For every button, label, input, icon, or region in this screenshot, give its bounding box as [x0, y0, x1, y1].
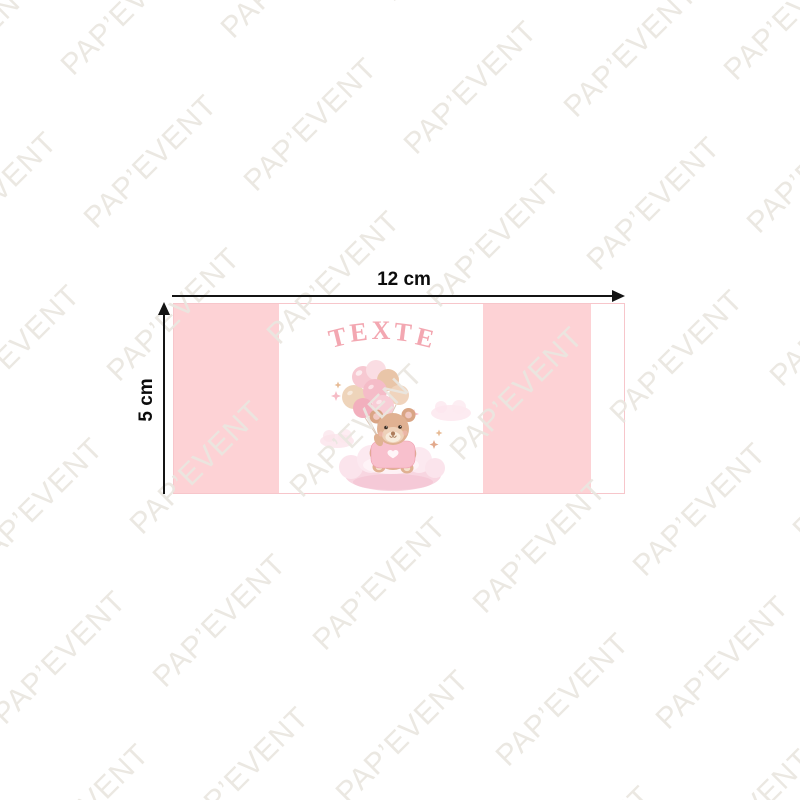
label-title-letter: E	[412, 322, 436, 355]
watermark-text: PAP’EVENT	[421, 168, 568, 315]
watermark-text: PAP’EVENT	[55, 0, 202, 82]
label-title-letter: T	[393, 317, 414, 349]
watermark-text: PAP’EVENT	[330, 664, 477, 800]
watermark-text: PAP’EVENT	[0, 585, 133, 732]
watermark-text: PAP’EVENT	[170, 701, 317, 800]
watermark-text: PAP’EVENT	[0, 126, 64, 273]
watermark-text: PAP’EVENT	[375, 0, 522, 8]
watermark-text: PAP’EVENT	[604, 284, 751, 431]
width-arrowhead-icon	[612, 290, 625, 302]
watermark-text: PAP’EVENT	[718, 0, 800, 87]
mockup-canvas: PAP’EVENTPAP’EVENTPAP’EVENTPAP’EVENTPAP’…	[0, 0, 800, 800]
width-dimension-label: 12 cm	[334, 269, 474, 291]
watermark-text: PAP’EVENT	[398, 15, 545, 162]
watermark-text: PAP’EVENT	[0, 279, 87, 426]
width-dimension-line	[172, 295, 616, 297]
balloons-group	[342, 360, 409, 418]
watermark-text: PAP’EVENT	[307, 511, 454, 658]
bear-group	[368, 408, 418, 474]
watermark-text: PAP’EVENT	[467, 474, 614, 621]
watermark-text: PAP’EVENT	[0, 0, 41, 119]
watermark-text: PAP’EVENT	[650, 590, 797, 737]
right-pink-panel	[483, 304, 591, 493]
watermark-text: PAP’EVENT	[10, 738, 157, 800]
left-pink-panel	[174, 304, 279, 493]
teddy-bear-illustration	[313, 355, 473, 495]
watermark-text: PAP’EVENT	[741, 94, 800, 241]
watermark-text: PAP’EVENT	[558, 0, 705, 124]
watermark-text: PAP’EVENT	[764, 247, 800, 394]
watermark-text: PAP’EVENT	[0, 432, 110, 579]
watermark-text: PAP’EVENT	[513, 780, 660, 800]
watermark-text: PAP’EVENT	[490, 627, 637, 774]
watermark-text: PAP’EVENT	[673, 743, 800, 800]
height-arrowhead-icon	[158, 302, 170, 315]
watermark-text: PAP’EVENT	[238, 52, 385, 199]
label-preview: TEXTE	[173, 303, 625, 494]
watermark-text: PAP’EVENT	[215, 0, 362, 45]
label-title-text: TEXTE	[279, 316, 483, 346]
height-dimension-line	[163, 312, 165, 494]
watermark-text: PAP’EVENT	[78, 89, 225, 236]
watermark-text: PAP’EVENT	[147, 548, 294, 695]
label-title-letter: T	[326, 322, 350, 355]
watermark-text: PAP’EVENT	[581, 131, 728, 278]
overlap-flap	[591, 304, 624, 493]
height-dimension-label: 5 cm	[136, 330, 158, 470]
watermark-text: PAP’EVENT	[627, 437, 774, 584]
label-title-letter: X	[372, 316, 391, 346]
label-title-letter: E	[349, 317, 370, 349]
watermark-text: PAP’EVENT	[787, 400, 800, 547]
